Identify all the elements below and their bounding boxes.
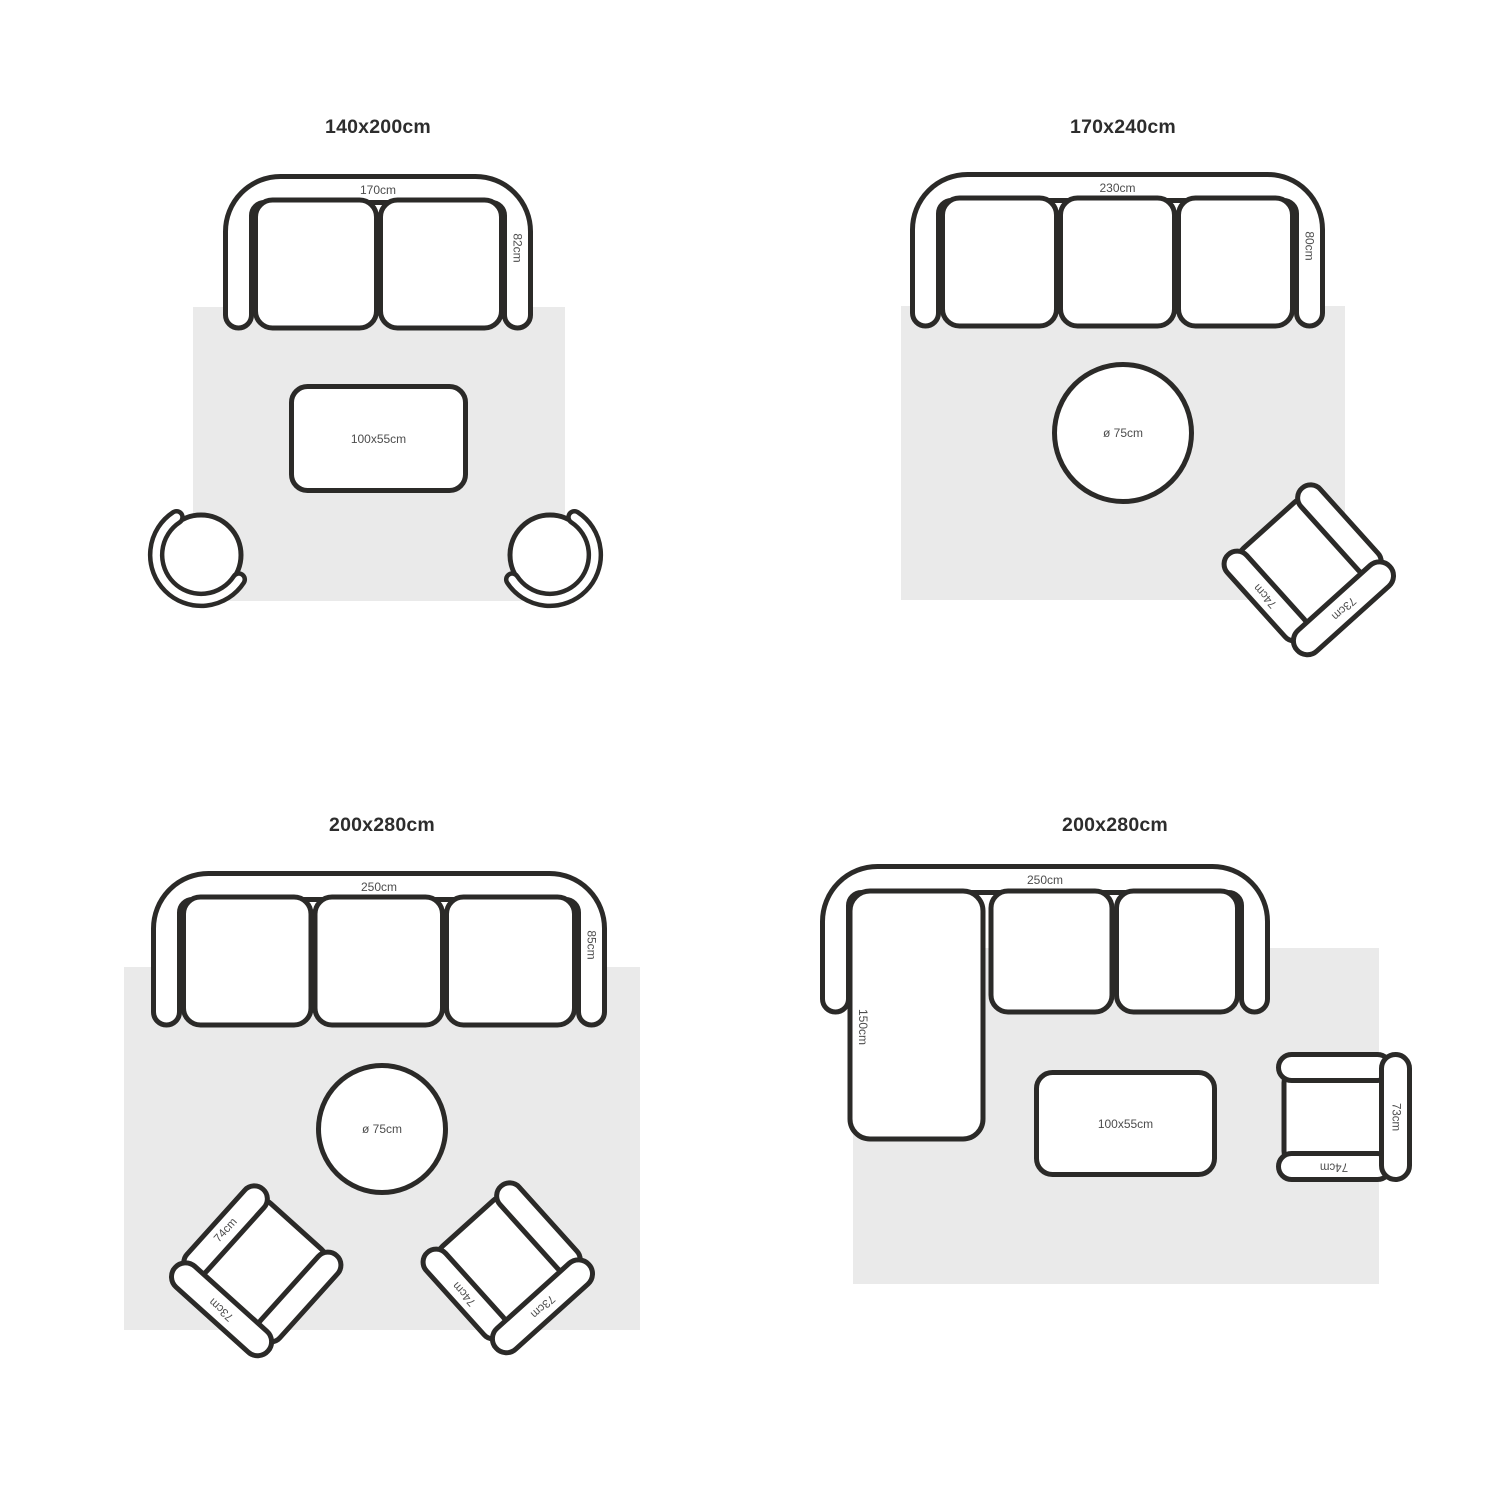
panel-title: 170x240cm: [923, 116, 1323, 139]
seat-cushion: [943, 198, 1057, 326]
seat-cushion: [1179, 198, 1293, 326]
seat-cushion: [1061, 198, 1175, 326]
round-table-label: ø 75cm: [362, 1122, 402, 1136]
sofa-width-label: 250cm: [361, 880, 397, 894]
sofa-depth-label: 85cm: [585, 930, 599, 959]
coffee-table: 100x55cm: [289, 384, 469, 494]
seat-cushion: [447, 897, 575, 1025]
seat-cushion: [256, 200, 377, 328]
armchair-back-label: 73cm: [1390, 1103, 1402, 1131]
rug-size-guide: 140x200cm 170cm 82cm 100x55cm 170x240cm …: [0, 0, 1500, 1500]
armchair-arm-label: 74cm: [1320, 1161, 1348, 1173]
sofa-width-label: 250cm: [1027, 873, 1063, 887]
swivel-chair: [141, 495, 261, 615]
swivel-chair: [490, 495, 610, 615]
round-table-label: ø 75cm: [1103, 426, 1143, 440]
panel-title: 200x280cm: [915, 814, 1315, 837]
seat-cushion: [991, 891, 1112, 1012]
sofa-depth-label: 80cm: [1303, 231, 1317, 260]
coffee-table-label: 100x55cm: [1098, 1117, 1153, 1131]
panel-title: 200x280cm: [182, 814, 582, 837]
seat-cushion: [381, 200, 502, 328]
sofa-width-label: 170cm: [360, 183, 396, 197]
sofa-3-seat: 230cm 80cm: [910, 172, 1325, 332]
round-table: ø 75cm: [315, 1062, 449, 1196]
seat-cushion: [1117, 891, 1238, 1012]
coffee-table-label: 100x55cm: [351, 432, 406, 446]
round-table: ø 75cm: [1051, 361, 1195, 505]
coffee-table: 100x55cm: [1034, 1070, 1218, 1178]
sofa-width-label: 230cm: [1099, 181, 1135, 195]
chaise-length-label: 150cm: [856, 1009, 870, 1045]
seat-cushion: [184, 897, 312, 1025]
armchair: 74cm 73cm: [1276, 1052, 1412, 1182]
sofa-2-seat: 170cm 82cm: [223, 174, 533, 334]
seat-cushion: [315, 897, 443, 1025]
panel-title: 140x200cm: [178, 116, 578, 139]
sofa-depth-label: 82cm: [511, 233, 525, 262]
armchair-arm: [1279, 1055, 1391, 1081]
sofa-3-seat: 250cm 85cm: [151, 871, 607, 1031]
